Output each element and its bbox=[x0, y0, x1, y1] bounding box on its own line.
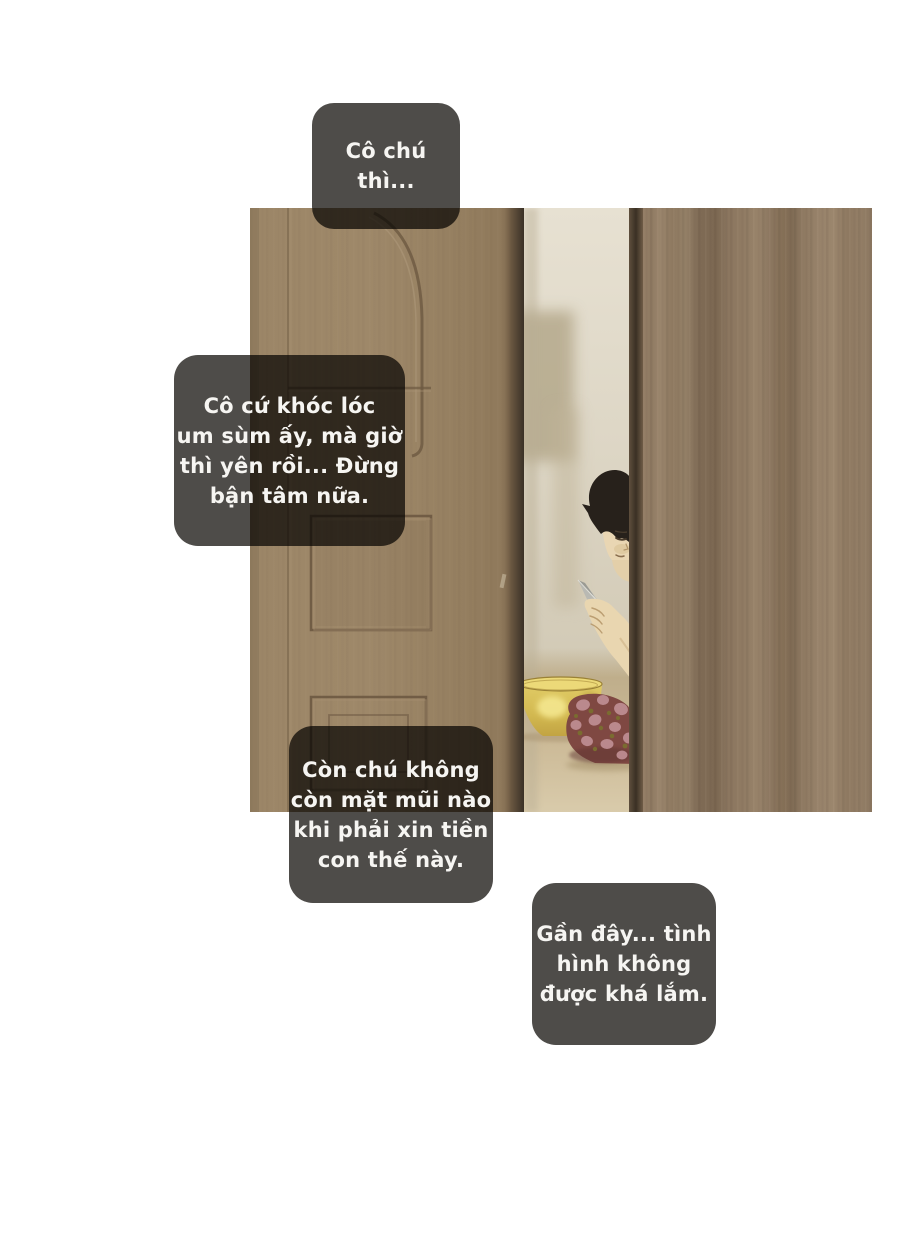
speech-bubble-bottom-left-text: Còn chú không còn mặt mũi nào khi phải x… bbox=[291, 755, 491, 875]
speech-bubble-left: Cô cứ khóc lóc um sùm ấy, mà giờ thì yên… bbox=[174, 355, 405, 546]
speech-bubble-bottom-left: Còn chú không còn mặt mũi nào khi phải x… bbox=[289, 726, 493, 903]
right-wood-panel bbox=[629, 208, 872, 812]
doorframe-edge bbox=[629, 208, 643, 812]
speech-bubble-top-text: Cô chú thì... bbox=[346, 136, 427, 196]
speech-bubble-bottom-right-text: Gần đây... tình hình không được khá lắm. bbox=[536, 919, 711, 1009]
speech-bubble-left-text: Cô cứ khóc lóc um sùm ấy, mà giờ thì yên… bbox=[177, 391, 403, 511]
speech-bubble-top: Cô chú thì... bbox=[312, 103, 460, 229]
door-edge bbox=[500, 208, 524, 812]
comic-page: Cô chú thì... Cô cứ khóc lóc um sùm ấy, … bbox=[0, 0, 900, 1255]
speech-bubble-bottom-right: Gần đây... tình hình không được khá lắm. bbox=[532, 883, 716, 1045]
patterned-cushion bbox=[566, 694, 636, 764]
